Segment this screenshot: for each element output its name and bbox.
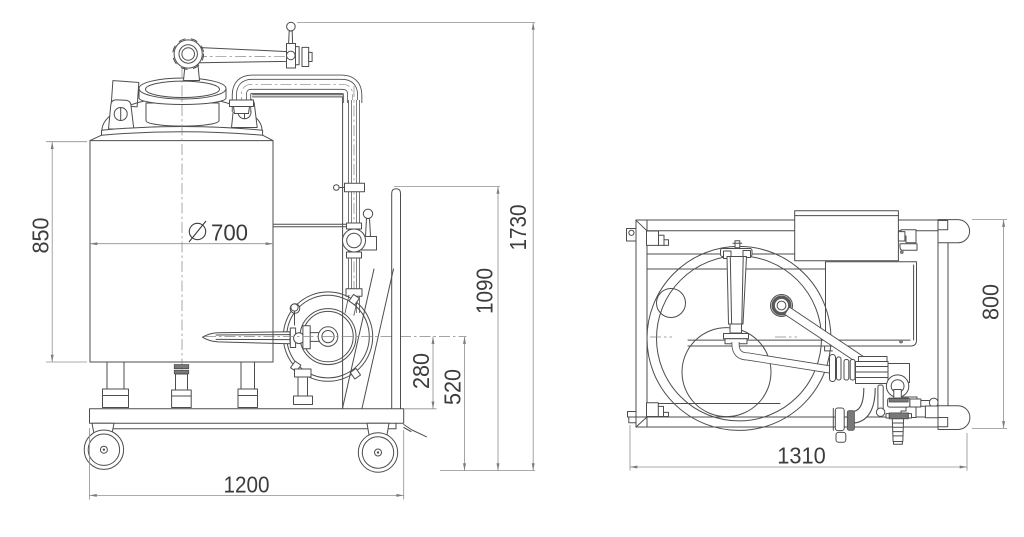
- svg-text:1730: 1730: [505, 205, 531, 251]
- svg-text:1200: 1200: [224, 472, 270, 498]
- svg-text:280: 280: [408, 353, 434, 389]
- svg-text:1090: 1090: [471, 268, 497, 314]
- svg-text:800: 800: [977, 284, 1003, 320]
- svg-text:850: 850: [27, 218, 53, 254]
- svg-text:1310: 1310: [777, 443, 826, 469]
- svg-text:700: 700: [211, 220, 248, 246]
- svg-text:520: 520: [439, 369, 465, 405]
